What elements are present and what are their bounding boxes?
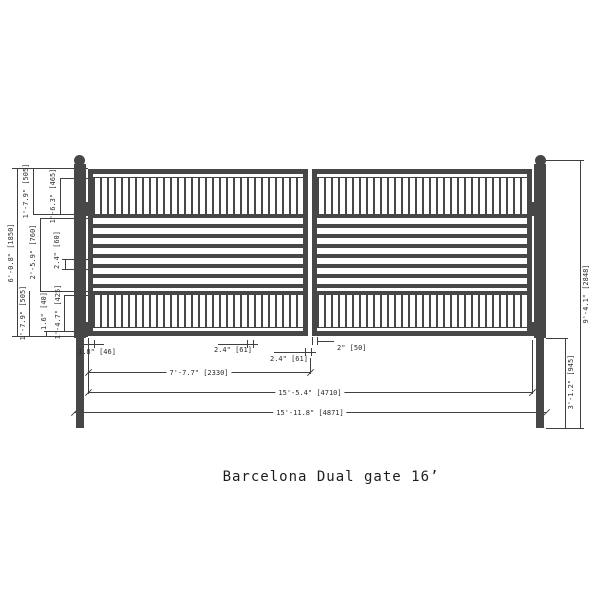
diagram-title: Barcelona Dual gate 16’ xyxy=(223,469,440,485)
dim-top-pickets: 1'-6.3" [465] xyxy=(49,169,57,224)
dim-post-depth: 3'-1.2" [945] xyxy=(567,355,575,410)
dim-center-gap: 2.4" [61] xyxy=(270,355,308,363)
dim-top-section: 1'-7.9" [505] xyxy=(22,164,30,219)
dimension-line xyxy=(17,168,18,337)
dim-bottom-frame: 1.6" [40] xyxy=(40,292,48,330)
panel-bottom-gap xyxy=(317,327,527,331)
dimension-line xyxy=(274,352,316,353)
dimension-tick xyxy=(312,337,313,345)
extension-line xyxy=(546,160,584,161)
top-picket-section xyxy=(317,178,527,214)
dim-bottom-pickets: 1'-4.7" [425] xyxy=(54,285,62,340)
dimension-line xyxy=(33,168,34,215)
dim-post-height: 9'-4.1" [2848] xyxy=(582,264,590,323)
dim-picket-gap: 2.4" [61] xyxy=(214,346,252,354)
gate-dimension-diagram: 6'-0.8" [1850] 1'-7.9" [505] 1'-6.3" [46… xyxy=(0,0,600,600)
dimension-line xyxy=(565,338,566,429)
dimension-line xyxy=(64,295,65,332)
dimension-line xyxy=(29,291,30,337)
dimension-tick xyxy=(307,369,314,376)
panel-bottom-gap xyxy=(93,327,303,331)
dimension-line xyxy=(46,331,47,337)
dim-bar-spacing: 2.4" [60] xyxy=(53,231,61,269)
dim-overall-width: 15'-11.8" [4871] xyxy=(273,409,346,417)
left-post xyxy=(74,164,86,338)
dim-bottom-section: 1'-7.9" [505] xyxy=(19,286,27,341)
dim-frame-width: 2" [50] xyxy=(337,344,367,352)
dimension-tick xyxy=(529,389,536,396)
gate-panel-left xyxy=(88,169,308,336)
dim-mid-section: 2'-5.9" [760] xyxy=(29,225,37,280)
gate-panel-right xyxy=(312,169,532,336)
dimension-line xyxy=(318,341,334,342)
horizontal-bar-section xyxy=(317,218,527,291)
dimension-line xyxy=(65,259,66,270)
dim-panel-width: 7'-7.7" [2330] xyxy=(166,369,231,377)
top-picket-section xyxy=(93,178,303,214)
bottom-picket-section xyxy=(317,295,527,327)
right-post xyxy=(534,164,546,338)
dimension-line xyxy=(40,218,41,292)
horizontal-bar-section xyxy=(93,218,303,291)
dim-gates-width: 15'-5.4" [4710] xyxy=(275,389,344,397)
right-post-underground xyxy=(536,338,544,428)
extension-line xyxy=(532,340,533,394)
dimension-line xyxy=(218,344,258,345)
dimension-line xyxy=(580,160,581,429)
dim-hinge-gap: 1.8" [46] xyxy=(78,348,116,356)
dim-gate-height: 6'-0.8" [1850] xyxy=(7,223,15,282)
bottom-picket-section xyxy=(93,295,303,327)
dimension-tick xyxy=(543,409,550,416)
dimension-line xyxy=(60,178,61,215)
